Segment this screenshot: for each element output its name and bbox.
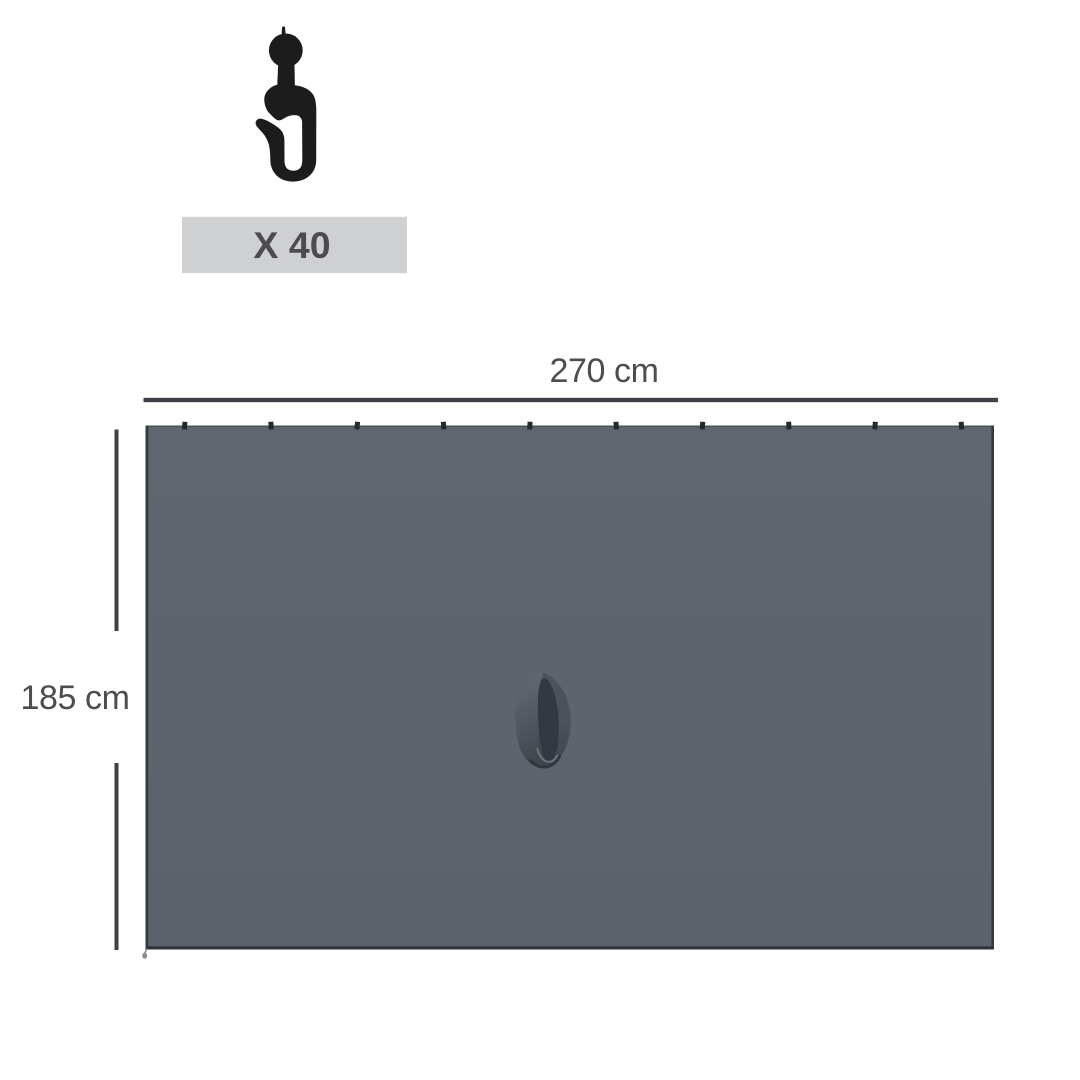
svg-text:270 cm: 270 cm (549, 352, 658, 390)
svg-text:185 cm: 185 cm (20, 679, 129, 717)
svg-text:X 40: X 40 (253, 224, 330, 266)
